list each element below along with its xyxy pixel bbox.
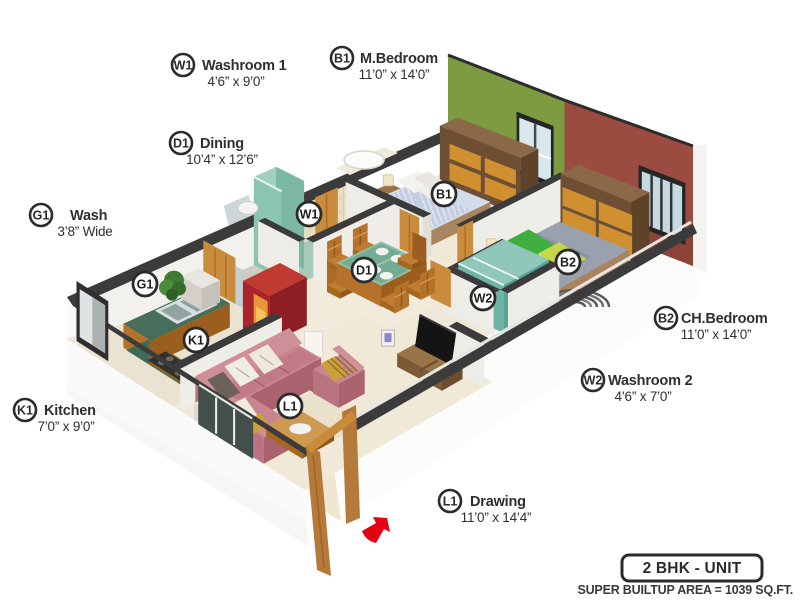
svg-text:B1: B1	[334, 52, 350, 66]
svg-text:W1: W1	[300, 208, 319, 222]
svg-text:Dining: Dining	[200, 136, 244, 152]
svg-text:4’6” x 9’0”: 4’6” x 9’0”	[207, 74, 264, 89]
svg-text:10’4” x 12’6”: 10’4” x 12’6”	[186, 152, 258, 167]
svg-text:W1: W1	[174, 59, 193, 73]
svg-text:7’0” x 9’0”: 7’0” x 9’0”	[37, 419, 94, 434]
svg-text:2 BHK - UNIT: 2 BHK - UNIT	[643, 560, 742, 577]
svg-text:B1: B1	[436, 188, 452, 202]
svg-text:W2: W2	[474, 292, 493, 306]
svg-text:11’0” x 14’0”: 11’0” x 14’0”	[681, 327, 752, 342]
svg-text:G1: G1	[33, 209, 50, 223]
svg-text:D1: D1	[356, 264, 372, 278]
svg-text:4’6” x 7’0”: 4’6” x 7’0”	[614, 389, 671, 404]
svg-text:K1: K1	[17, 404, 33, 418]
svg-text:B2: B2	[560, 256, 576, 270]
svg-text:SUPER BUILTUP AREA = 1039 SQ.F: SUPER BUILTUP AREA = 1039 SQ.FT.	[577, 583, 793, 597]
svg-text:Kitchen: Kitchen	[44, 403, 96, 419]
svg-text:G1: G1	[137, 278, 154, 292]
svg-text:Drawing: Drawing	[470, 494, 526, 510]
svg-text:D1: D1	[173, 137, 189, 151]
svg-text:B2: B2	[658, 312, 674, 326]
svg-text:Washroom 2: Washroom 2	[608, 373, 693, 389]
svg-text:Wash: Wash	[70, 208, 107, 224]
svg-text:11’0” x 14’4”: 11’0” x 14’4”	[461, 510, 532, 525]
svg-text:K1: K1	[188, 334, 204, 348]
svg-text:11’0” x 14’0”: 11’0” x 14’0”	[359, 67, 430, 82]
svg-text:3’8” Wide: 3’8” Wide	[57, 224, 112, 239]
svg-text:Washroom 1: Washroom 1	[202, 58, 287, 74]
svg-text:M.Bedroom: M.Bedroom	[360, 51, 438, 67]
svg-text:W2: W2	[584, 374, 603, 388]
svg-text:L1: L1	[443, 495, 458, 509]
svg-text:L1: L1	[283, 400, 298, 414]
svg-text:CH.Bedroom: CH.Bedroom	[681, 311, 768, 327]
